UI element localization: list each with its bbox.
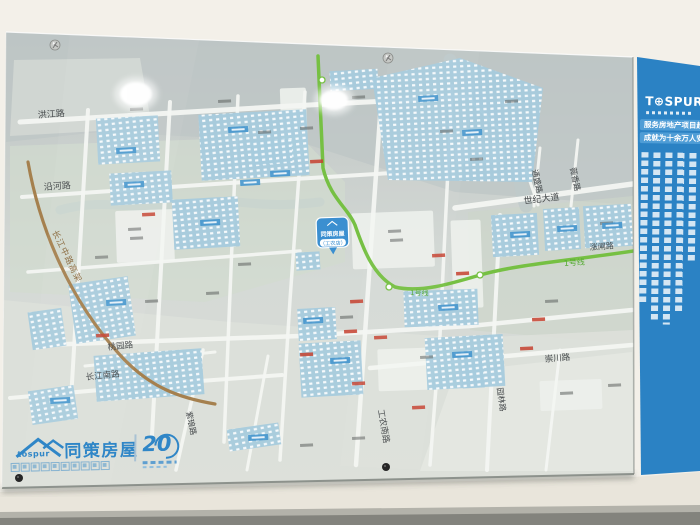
- residential-block-buildings: [461, 355, 485, 388]
- camera-flash-glare: [120, 82, 152, 106]
- promo-banner: T⊕SPUR® 服务房地产项目超 成就为十余万人安: [629, 57, 700, 476]
- road-label: 1号线: [563, 257, 585, 268]
- project-name-columns: [639, 152, 697, 325]
- brand-divider: [134, 434, 136, 461]
- tospur-logo: T⊕SPUR®: [645, 94, 700, 109]
- residential-block-buildings: [251, 139, 292, 165]
- project-column: [651, 152, 661, 320]
- small-red-label: [520, 346, 533, 350]
- brand-name-cn: 同策房屋: [64, 435, 139, 462]
- small-red-label: [344, 329, 357, 333]
- screw-highlight: [385, 55, 387, 57]
- mounting-dot-highlight: [384, 465, 386, 467]
- project-column: [639, 152, 648, 302]
- tospur-logo-text: T⊕SPUR: [645, 94, 700, 109]
- logo-subtext-dots: [646, 111, 692, 115]
- facility-block: [539, 379, 602, 411]
- project-column: [688, 153, 697, 261]
- brand-name-en: tospur: [17, 449, 50, 459]
- map-print: 洪江路沿河路长江中路高架桃园路长江南路紫琅路工农南路园林路崇川路世纪大道薇香路通…: [3, 32, 640, 488]
- small-red-label: [532, 317, 545, 321]
- banner-slogan-2: 成就为十余万人安: [640, 132, 700, 144]
- residential-block-buildings: [296, 251, 321, 270]
- camera-flash-glare: [320, 90, 348, 110]
- mounting-dot: [382, 463, 390, 471]
- small-red-label: [300, 352, 313, 356]
- metro-station: [477, 272, 483, 278]
- anniversary-subtext: [143, 466, 167, 469]
- small-red-label: [310, 159, 323, 163]
- screw-highlight: [52, 42, 54, 44]
- small-red-label: [456, 271, 469, 275]
- anniversary-subtext: [143, 461, 177, 464]
- project-column: [663, 152, 673, 324]
- brand-logo-bar: tospur 同策房屋 20: [10, 430, 211, 480]
- project-column: [675, 153, 685, 313]
- road-label: 涨闸路: [589, 240, 614, 252]
- banner-slogan-1: 服务房地产项目超: [640, 119, 700, 131]
- road-label: 崇川路: [544, 352, 571, 365]
- metro-station: [319, 77, 325, 83]
- store-marker-title: 同策房屋: [320, 230, 344, 239]
- brand-tagline-boxes: [11, 461, 110, 472]
- photo-map-board: 洪江路沿河路长江中路高架桃园路长江南路紫琅路工农南路园林路崇川路世纪大道薇香路通…: [0, 0, 700, 525]
- residential-block-buildings: [297, 307, 337, 341]
